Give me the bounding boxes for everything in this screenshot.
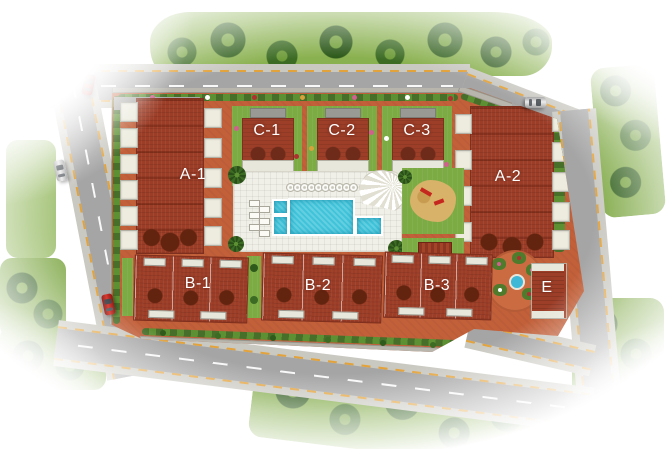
flower bbox=[517, 256, 521, 260]
shrub bbox=[380, 340, 386, 346]
balcony-unit bbox=[455, 150, 472, 170]
building-e-terrace bbox=[532, 264, 564, 271]
roof-vent bbox=[354, 258, 376, 267]
roof-vent bbox=[446, 308, 472, 317]
flower-bed bbox=[369, 130, 374, 135]
building-e-terrace bbox=[532, 311, 564, 318]
roof-vent bbox=[392, 255, 414, 264]
flower-bed bbox=[234, 126, 239, 131]
roof-vent bbox=[200, 311, 226, 320]
palm-tree bbox=[228, 166, 246, 184]
block-label-c2: C-2 bbox=[328, 122, 355, 140]
flower-bed bbox=[405, 95, 410, 100]
balcony-unit bbox=[204, 108, 222, 128]
roof-vent bbox=[466, 257, 488, 266]
car-rear-window bbox=[529, 99, 532, 106]
tree bbox=[250, 264, 258, 272]
playground-lawn bbox=[402, 168, 464, 234]
flower-bed bbox=[300, 95, 305, 100]
car-rear-window bbox=[106, 307, 113, 311]
balcony-unit bbox=[204, 168, 222, 188]
shrub bbox=[215, 333, 221, 339]
flower-bed bbox=[309, 146, 314, 151]
block-label-b2: B-2 bbox=[305, 277, 331, 295]
roof-vent bbox=[332, 311, 358, 320]
roof-vent bbox=[398, 307, 424, 316]
curb-line bbox=[50, 70, 470, 72]
palm-tree bbox=[398, 170, 412, 184]
car-rear-window bbox=[58, 173, 65, 177]
balcony-unit bbox=[120, 102, 138, 122]
roof-vent bbox=[278, 310, 304, 319]
balcony-unit bbox=[120, 154, 138, 174]
palm-tree bbox=[228, 236, 244, 252]
roof-vent bbox=[182, 259, 204, 268]
roof-vent bbox=[429, 256, 451, 265]
balcony-unit bbox=[120, 206, 138, 226]
shrub bbox=[160, 330, 166, 336]
car-silver-entrance bbox=[525, 97, 546, 108]
balcony-unit bbox=[120, 128, 138, 148]
block-label-c1: C-1 bbox=[253, 122, 280, 140]
car-windshield bbox=[104, 298, 112, 304]
shrub bbox=[430, 342, 436, 348]
road-center-dashes bbox=[67, 85, 453, 87]
tree bbox=[250, 296, 258, 304]
car-windshield bbox=[56, 164, 64, 170]
site-plan-canvas: A-1 A-2 B-1 B-2 B-3 C-1 C-2 C-3 E bbox=[0, 0, 667, 449]
balcony-unit bbox=[204, 226, 222, 246]
balcony-unit bbox=[204, 198, 222, 218]
flower bbox=[497, 262, 501, 266]
parking-pad bbox=[325, 108, 361, 118]
balcony-unit bbox=[552, 230, 570, 250]
block-label-b3: B-3 bbox=[424, 277, 450, 295]
sun-lounger bbox=[259, 206, 270, 213]
block-label-e: E bbox=[541, 279, 552, 297]
lawn-strip bbox=[247, 256, 261, 318]
fountain bbox=[509, 274, 525, 290]
balcony-unit bbox=[120, 230, 138, 250]
block-label-b1: B-1 bbox=[185, 275, 211, 293]
building-a1 bbox=[120, 98, 232, 252]
flower bbox=[498, 288, 502, 292]
roof-vent bbox=[313, 257, 335, 266]
block-label-a1: A-1 bbox=[180, 166, 206, 184]
car-windshield bbox=[536, 99, 541, 106]
small-pool bbox=[355, 216, 383, 236]
roof-vent bbox=[272, 256, 294, 265]
lawn-strip bbox=[122, 258, 133, 316]
car-rear-window bbox=[84, 87, 91, 91]
flower-bed bbox=[294, 154, 299, 159]
parking-pad bbox=[400, 108, 436, 118]
balcony-unit bbox=[455, 114, 472, 134]
sun-lounger bbox=[259, 230, 270, 237]
hedge-left bbox=[113, 96, 120, 324]
parking-pad bbox=[250, 108, 286, 118]
flower-bed bbox=[384, 136, 389, 141]
flower-bed bbox=[448, 96, 453, 101]
roof-vent bbox=[144, 258, 166, 267]
flower-bed bbox=[444, 162, 449, 167]
car-windshield bbox=[85, 78, 93, 84]
flower-bed bbox=[252, 95, 257, 100]
swimming-pool bbox=[288, 198, 355, 236]
block-label-c3: C-3 bbox=[403, 122, 430, 140]
kids-pool bbox=[272, 215, 289, 236]
shrub bbox=[325, 337, 331, 343]
roof-vent bbox=[148, 310, 174, 319]
roof-vent bbox=[220, 260, 242, 269]
shrub bbox=[270, 335, 276, 341]
balcony-unit bbox=[120, 180, 138, 200]
pool-umbrella bbox=[349, 183, 358, 192]
sun-lounger bbox=[259, 218, 270, 225]
tree-patch-left bbox=[0, 258, 66, 338]
flower-bed bbox=[352, 95, 357, 100]
balcony-unit bbox=[552, 202, 570, 222]
grass-patch-left-upper bbox=[6, 140, 56, 258]
balcony-unit bbox=[204, 138, 222, 158]
block-label-a2: A-2 bbox=[495, 168, 521, 186]
kids-pool bbox=[272, 199, 289, 215]
